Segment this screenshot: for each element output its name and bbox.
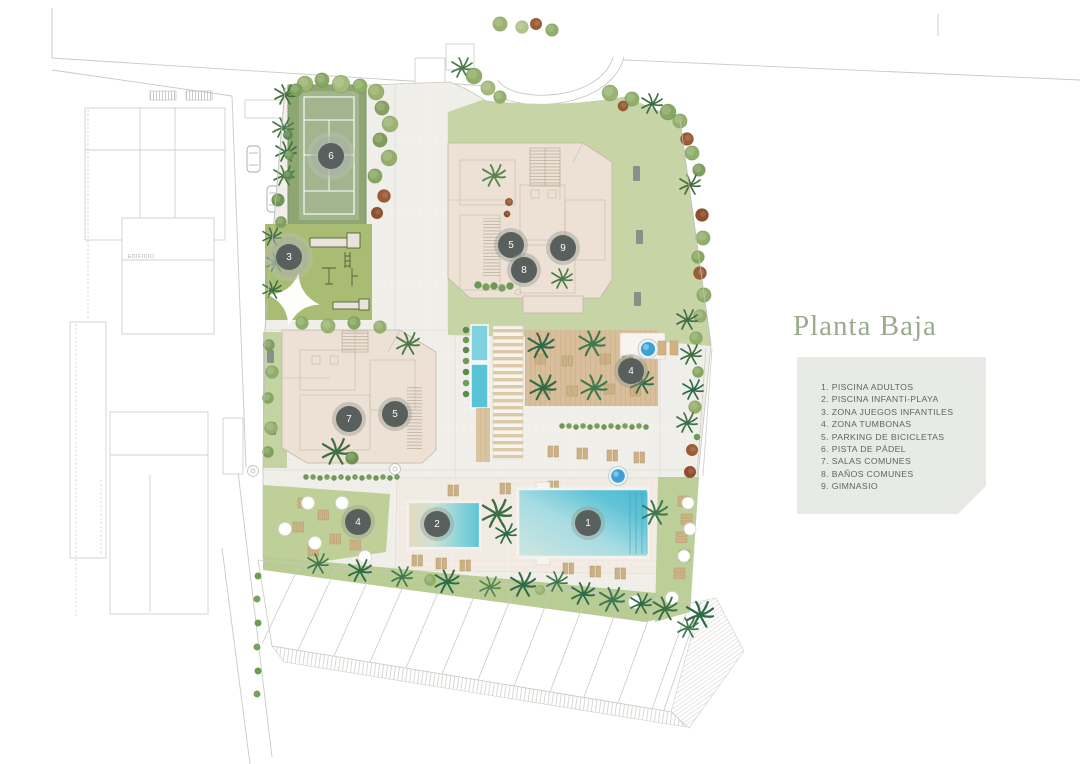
plan-marker-number: 4 [355,517,361,528]
plan-marker-1: 1 [575,510,601,536]
plan-marker-6: 6 [318,143,344,169]
plan-marker-number: 6 [328,151,334,162]
legend-list: 1. PISCINA ADULTOS2. PISCINA INFANTI-PLA… [821,381,986,493]
legend-panel: 1. PISCINA ADULTOS2. PISCINA INFANTI-PLA… [797,357,986,514]
legend-item-1: 1. PISCINA ADULTOS [821,381,986,393]
plan-marker-4: 4 [618,358,644,384]
plan-marker-number: 2 [434,519,440,530]
plan-marker-7: 7 [336,406,362,432]
legend-item-6: 6. PISTA DE PÁDEL [821,443,986,455]
plan-marker-5: 5 [498,232,524,258]
plan-marker-number: 3 [286,252,292,263]
plan-marker-number: 4 [628,366,634,377]
plan-marker-3: 3 [276,244,302,270]
plan-marker-number: 7 [346,414,352,425]
legend-item-9: 9. GIMNASIO [821,480,986,492]
plan-marker-number: 5 [508,240,514,251]
plan-marker-number: 8 [521,265,527,276]
plan-marker-2: 2 [424,511,450,537]
plan-marker-4: 4 [345,509,371,535]
plan-marker-number: 5 [392,409,398,420]
legend-item-3: 3. ZONA JUEGOS INFANTILES [821,406,986,418]
legend-item-8: 8. BAÑOS COMUNES [821,468,986,480]
legend-item-4: 4. ZONA TUMBONAS [821,418,986,430]
legend-item-7: 7. SALAS COMUNES [821,455,986,467]
plan-marker-8: 8 [511,257,537,283]
legend-item-2: 2. PISCINA INFANTI-PLAYA [821,393,986,405]
plan-marker-5: 5 [382,401,408,427]
plan-marker-number: 1 [585,518,591,529]
site-plan-page: 63598754421 EDIFICIO Planta Baja 1. PISC… [0,0,1080,764]
plan-marker-number: 9 [560,243,566,254]
page-title: Planta Baja [793,310,937,343]
legend-item-5: 5. PARKING DE BICICLETAS [821,431,986,443]
neighbor-building-label: EDIFICIO [128,254,198,260]
plan-marker-9: 9 [550,235,576,261]
